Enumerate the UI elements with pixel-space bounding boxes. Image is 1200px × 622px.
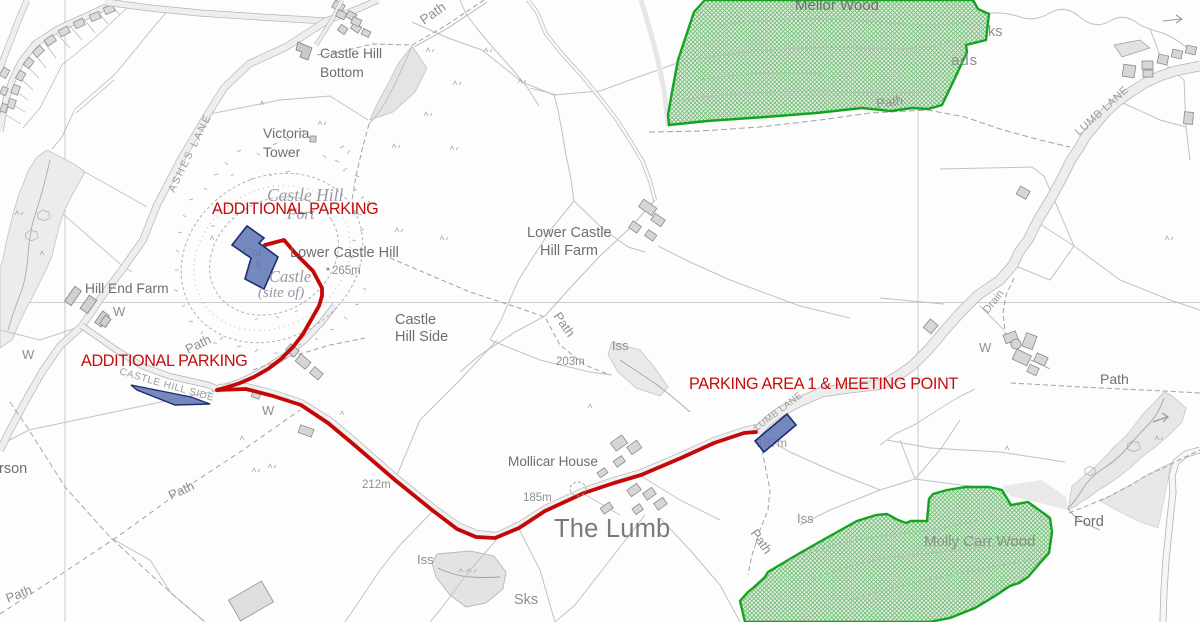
svg-text:Hill Side: Hill Side: [395, 329, 448, 345]
svg-text:Iss: Iss: [797, 511, 814, 526]
svg-text:Iss: Iss: [612, 338, 629, 353]
svg-text:203m: 203m: [556, 356, 585, 368]
svg-text:Castle Hill: Castle Hill: [320, 46, 382, 61]
svg-text:Mellor Wood: Mellor Wood: [795, 0, 879, 14]
svg-text:Hill Farm: Hill Farm: [540, 243, 598, 259]
svg-text:W: W: [979, 340, 992, 355]
svg-text:(site of): (site of): [258, 285, 304, 301]
svg-text:rson: rson: [0, 461, 27, 477]
svg-text:W: W: [113, 304, 126, 319]
svg-text:Castle: Castle: [269, 267, 311, 286]
svg-text:Mollicar House: Mollicar House: [508, 454, 598, 469]
svg-text:ads: ads: [951, 52, 978, 69]
svg-text:Molly Carr Wood: Molly Carr Wood: [924, 533, 1035, 550]
svg-text:ks: ks: [988, 24, 1003, 40]
svg-text:185m: 185m: [523, 492, 552, 504]
svg-text:Lower Castle Hill: Lower Castle Hill: [290, 245, 399, 261]
svg-text:265m: 265m: [332, 265, 361, 277]
svg-text:Sks: Sks: [514, 592, 538, 608]
svg-text:Lower Castle: Lower Castle: [527, 225, 612, 241]
svg-text:The Lumb: The Lumb: [554, 515, 670, 543]
svg-text:W: W: [262, 403, 275, 418]
svg-text:Ford: Ford: [1074, 514, 1104, 530]
svg-text:Path: Path: [1100, 371, 1129, 387]
svg-text:Bottom: Bottom: [320, 65, 364, 80]
svg-text:PARKING AREA 1 & MEETING POINT: PARKING AREA 1 & MEETING POINT: [689, 375, 958, 393]
svg-text:Castle: Castle: [395, 312, 436, 328]
svg-text:Victoria: Victoria: [263, 125, 310, 141]
svg-text:Hill End Farm: Hill End Farm: [85, 281, 169, 296]
svg-text:ADDITIONAL PARKING: ADDITIONAL PARKING: [212, 200, 378, 218]
svg-text:Tower: Tower: [263, 144, 301, 160]
svg-text:W: W: [22, 347, 35, 362]
svg-text:212m: 212m: [362, 479, 391, 491]
svg-text:Iss: Iss: [417, 552, 434, 567]
svg-text:ADDITIONAL PARKING: ADDITIONAL PARKING: [81, 352, 247, 370]
